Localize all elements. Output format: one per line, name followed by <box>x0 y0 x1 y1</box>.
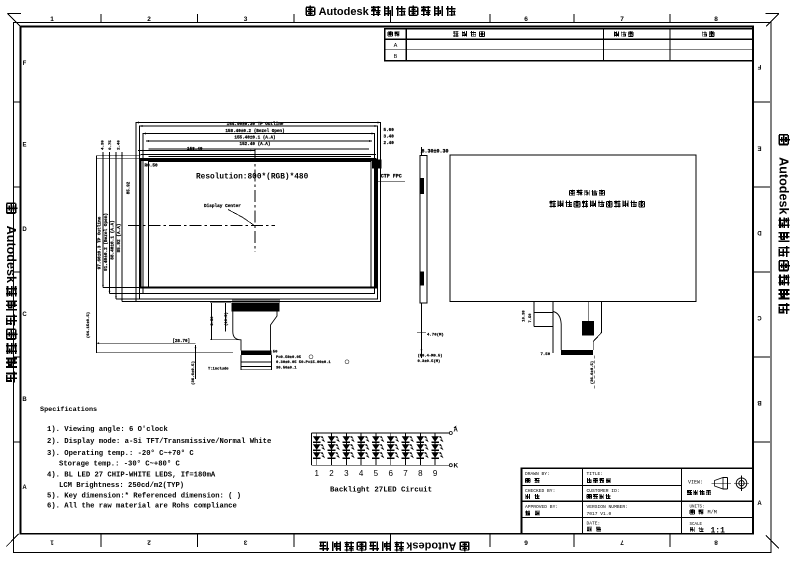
svg-text:APPROVED BY:: APPROVED BY: <box>525 504 558 510</box>
svg-text:2: 2 <box>329 469 334 478</box>
svg-text:3: 3 <box>344 469 349 478</box>
svg-text:Autodesk: Autodesk <box>319 6 370 18</box>
svg-text:Autodesk: Autodesk <box>405 539 456 551</box>
svg-text:85.92 (A.A): 85.92 (A.A) <box>117 224 122 253</box>
svg-text:D: D <box>757 229 762 235</box>
svg-text:91.40±0.2 (Bezel Open): 91.40±0.2 (Bezel Open) <box>104 213 109 271</box>
svg-text:7: 7 <box>620 539 624 546</box>
svg-text:4: 4 <box>359 469 364 478</box>
svg-text:M/M: M/M <box>708 509 717 515</box>
svg-text:1: 1 <box>50 539 54 546</box>
svg-text:85.92: 85.92 <box>128 181 132 194</box>
svg-text:(36.6±0.5): (36.6±0.5) <box>590 361 595 384</box>
svg-text:DRAWN BY:: DRAWN BY: <box>525 471 550 477</box>
svg-text:3). Operating temp.: -20° C~+7: 3). Operating temp.: -20° C~+70° C <box>47 449 194 458</box>
svg-text:50: 50 <box>273 351 278 355</box>
svg-text:VERSION NUMBER:: VERSION NUMBER: <box>587 504 628 510</box>
svg-text:9: 9 <box>433 469 438 478</box>
svg-text:A: A <box>757 501 762 507</box>
svg-text:[28.70]: [28.70] <box>172 339 190 344</box>
svg-text:F: F <box>23 61 27 67</box>
svg-text:2: 2 <box>147 16 151 23</box>
svg-text:CUSTOMER ID:: CUSTOMER ID: <box>587 488 620 494</box>
svg-text:7: 7 <box>403 469 408 478</box>
svg-text:P=0.50±0.05: P=0.50±0.05 <box>276 356 302 360</box>
svg-text:(36.6±0.5): (36.6±0.5) <box>191 361 196 385</box>
svg-text:D: D <box>22 227 27 233</box>
svg-text:R0.50: R0.50 <box>145 164 159 169</box>
svg-text:0.75: 0.75 <box>109 140 113 150</box>
svg-text:8: 8 <box>714 539 718 546</box>
svg-text:(64.15±0.5): (64.15±0.5) <box>86 312 91 338</box>
svg-text:1: 1 <box>50 16 54 23</box>
svg-text:7.50: 7.50 <box>529 313 533 323</box>
svg-text:2: 2 <box>147 539 151 546</box>
svg-text:7: 7 <box>620 16 624 23</box>
svg-text:Storage temp.: -30° C~+80° C: Storage temp.: -30° C~+80° C <box>59 460 180 469</box>
svg-text:1:1: 1:1 <box>711 527 726 536</box>
svg-text:1: 1 <box>314 469 319 478</box>
svg-text:0.30±0.05 50-P=15.00±0.1: 0.30±0.05 50-P=15.00±0.1 <box>276 361 331 365</box>
svg-text:8: 8 <box>714 16 718 23</box>
svg-text:E: E <box>22 143 26 149</box>
svg-text:6). All the raw material are R: 6). All the raw material are Rohs compli… <box>47 503 237 511</box>
svg-text:6: 6 <box>524 16 528 23</box>
svg-text:A: A <box>454 428 459 434</box>
svg-text:(P0.4-M0.5): (P0.4-M0.5) <box>418 354 443 359</box>
svg-text:4.30: 4.30 <box>102 140 106 150</box>
svg-text:1). Viewing angle: 6 O'clock: 1). Viewing angle: 6 O'clock <box>47 426 168 434</box>
svg-text:3.40: 3.40 <box>384 134 395 139</box>
svg-text:158.40: 158.40 <box>187 147 203 152</box>
svg-text:4.70(M): 4.70(M) <box>427 333 444 338</box>
svg-text:Specifications: Specifications <box>40 406 97 414</box>
svg-text:5.60: 5.60 <box>384 128 395 133</box>
svg-text:0.3±0.5(M): 0.3±0.5(M) <box>418 359 441 364</box>
svg-text:2). Display mode: a-Si TFT/Tra: 2). Display mode: a-Si TFT/Transmissive/… <box>47 438 271 446</box>
svg-text:7017 V1.0: 7017 V1.0 <box>587 511 612 517</box>
svg-text:164.90±0.30 TP Outline: 164.90±0.30 TP Outline <box>227 122 284 127</box>
svg-text:K: K <box>454 463 459 470</box>
svg-text:5). Key dimension:* Referenced: 5). Key dimension:* Referenced dimension… <box>47 493 241 501</box>
svg-text:158.40±0.2 (Bezel Open): 158.40±0.2 (Bezel Open) <box>225 129 284 134</box>
svg-text:UNITS:: UNITS: <box>690 505 705 509</box>
svg-text:2.40: 2.40 <box>384 141 395 146</box>
svg-text:5: 5 <box>374 469 379 478</box>
svg-text:2.40: 2.40 <box>118 140 122 150</box>
svg-text:Autodesk: Autodesk <box>776 157 790 214</box>
svg-text:7.50: 7.50 <box>541 353 551 357</box>
svg-text:VIEW:: VIEW: <box>688 480 703 486</box>
svg-text:6: 6 <box>388 469 393 478</box>
svg-text:(10.5): (10.5) <box>224 312 229 326</box>
svg-text:T:include: T:include <box>208 367 229 372</box>
svg-text:C: C <box>757 314 762 320</box>
svg-text:8.50: 8.50 <box>211 316 215 326</box>
svg-text:Autodesk: Autodesk <box>4 226 18 283</box>
svg-text:CTP FPC: CTP FPC <box>381 174 402 180</box>
svg-text:6: 6 <box>524 539 528 546</box>
svg-text:4). BL LED 27 CHIP-WHITE LEDS,: 4). BL LED 27 CHIP-WHITE LEDS, If=180mA <box>47 472 216 480</box>
svg-text:3: 3 <box>243 539 247 546</box>
svg-text:8: 8 <box>418 469 423 478</box>
svg-text:B: B <box>22 397 27 403</box>
svg-text:LCM Brightness: 250cd/m2(TYP): LCM Brightness: 250cd/m2(TYP) <box>59 482 184 490</box>
svg-text:B: B <box>757 399 762 405</box>
svg-text:152.40 (A.A): 152.40 (A.A) <box>240 142 271 147</box>
svg-text:88.40±0.1 (A.A): 88.40±0.1 (A.A) <box>111 220 116 260</box>
svg-text:C: C <box>22 312 27 318</box>
svg-text:Resolution:800*(RGB)*480: Resolution:800*(RGB)*480 <box>196 174 309 182</box>
svg-text:Backlight 27LED Circuit: Backlight 27LED Circuit <box>330 487 432 495</box>
svg-text:3: 3 <box>244 16 248 23</box>
svg-text:6.30±0.30: 6.30±0.30 <box>422 149 449 155</box>
svg-text:155.40±0.1 (A.A): 155.40±0.1 (A.A) <box>234 135 275 140</box>
svg-text:CHECKED BY:: CHECKED BY: <box>525 488 555 494</box>
svg-text:TITLE:: TITLE: <box>587 471 604 477</box>
svg-text:F: F <box>757 63 761 69</box>
svg-text:Display Center: Display Center <box>204 204 241 209</box>
svg-text:A: A <box>394 43 398 49</box>
svg-text:10.30: 10.30 <box>523 310 527 322</box>
svg-text:SCALE: SCALE <box>690 523 703 527</box>
svg-text:DATE:: DATE: <box>587 520 601 526</box>
svg-text:E: E <box>757 145 761 151</box>
svg-text:B: B <box>394 54 398 60</box>
svg-text:30.50±0.1: 30.50±0.1 <box>276 367 297 371</box>
svg-text:A: A <box>22 485 27 491</box>
svg-text:97.60±0.3 TP Outline: 97.60±0.3 TP Outline <box>98 216 103 269</box>
